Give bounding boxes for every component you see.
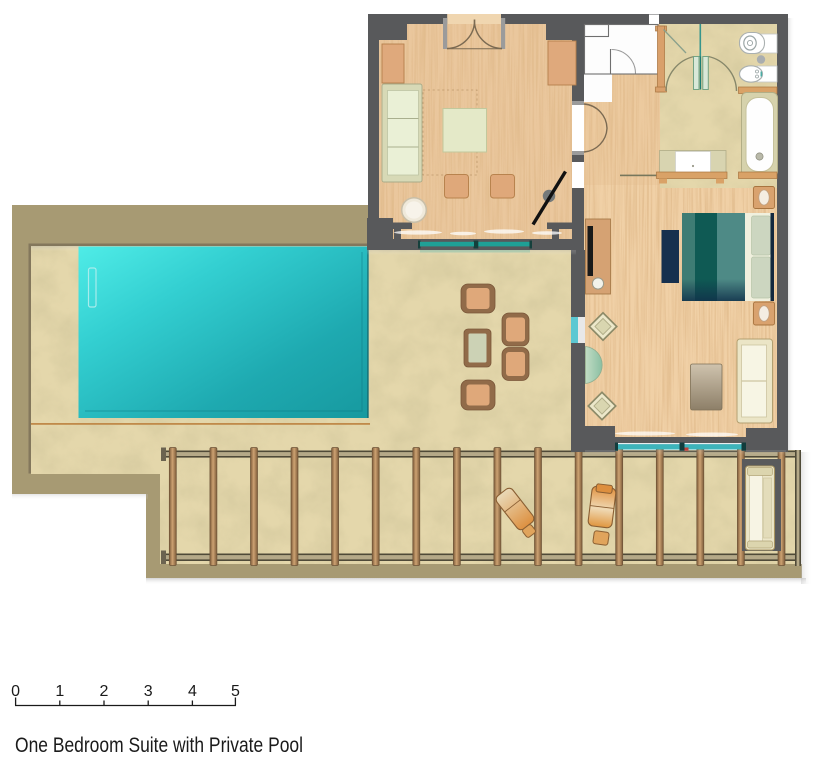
- svg-text:1: 1: [55, 683, 64, 700]
- svg-text:2: 2: [100, 683, 109, 700]
- svg-text:One Bedroom Suite with Private: One Bedroom Suite with Private Pool: [15, 734, 303, 757]
- svg-text:5: 5: [231, 683, 240, 700]
- svg-text:4: 4: [188, 683, 197, 700]
- svg-text:0: 0: [11, 683, 20, 700]
- svg-text:3: 3: [144, 683, 153, 700]
